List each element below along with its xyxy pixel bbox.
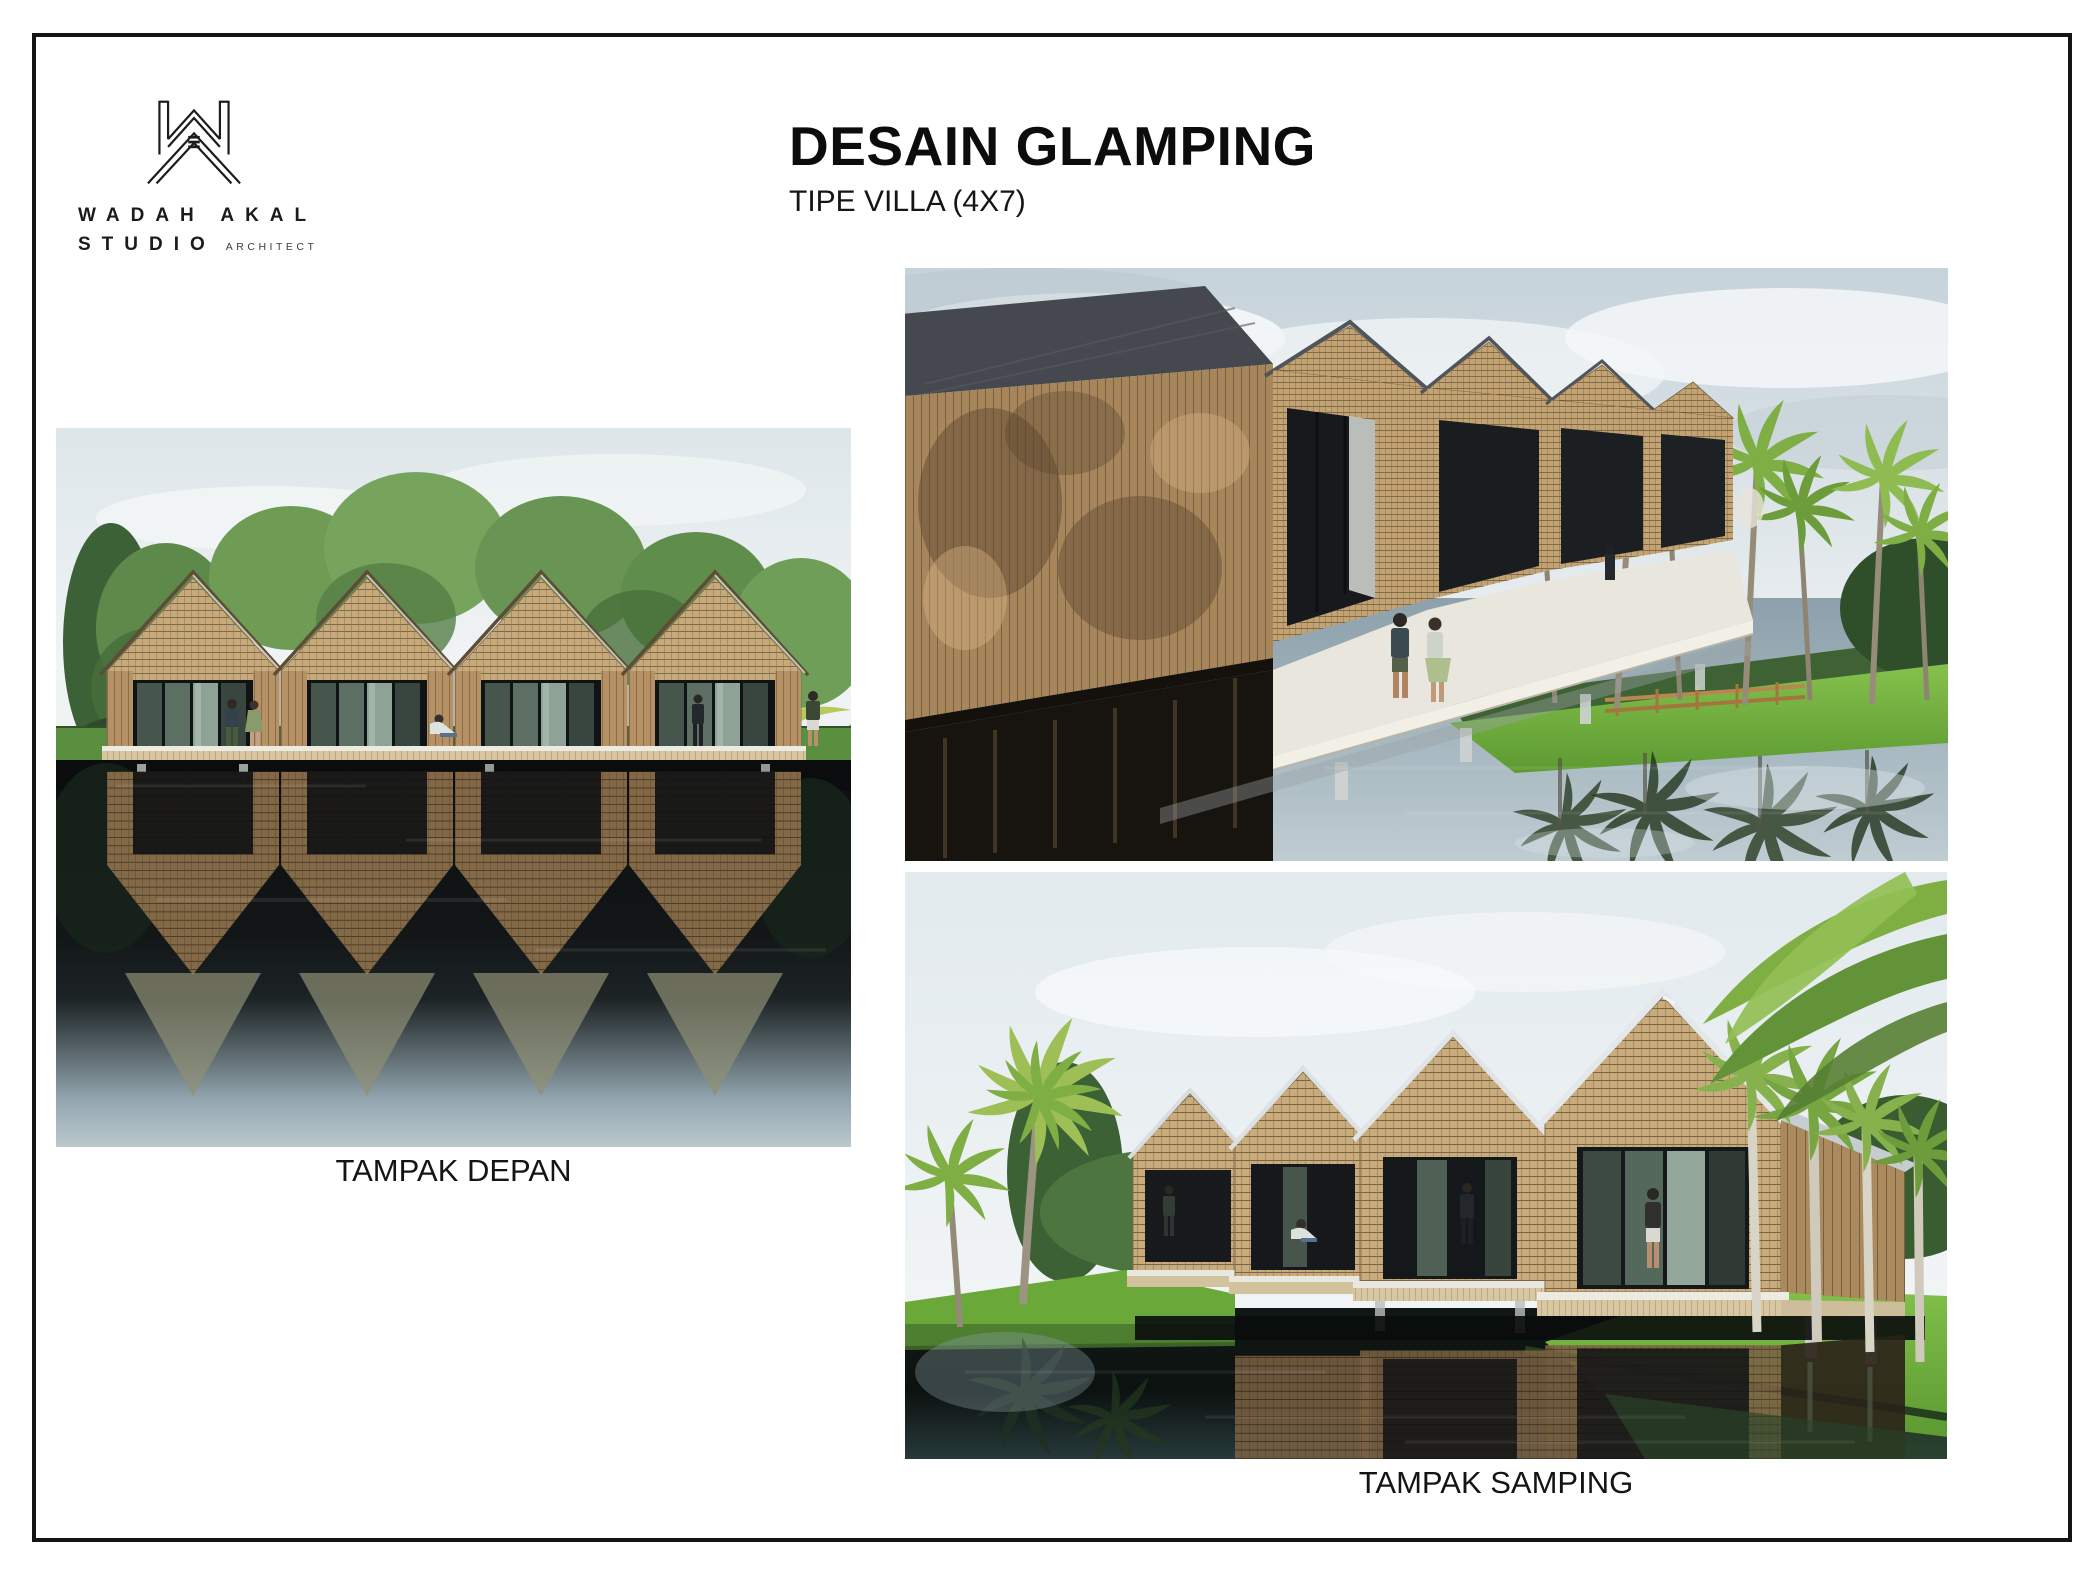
front-water <box>56 760 851 1147</box>
presentation-slide: WADAH AKAL STUDIOARCHITECT DESAIN GLAMPI… <box>0 0 2100 1575</box>
brand-architect: ARCHITECT <box>226 241 318 253</box>
render-side-view: TAMPAK SAMPING <box>905 872 1947 1459</box>
studio-brand: WADAH AKAL STUDIOARCHITECT <box>78 205 328 256</box>
render-front-view: TAMPAK DEPAN <box>56 428 851 1147</box>
brand-name: WADAH AKAL <box>78 205 328 227</box>
render-perspective-view <box>905 268 1948 861</box>
brand-sub: STUDIOARCHITECT <box>78 234 328 256</box>
caption-side-view: TAMPAK SAMPING <box>905 1465 1947 1501</box>
caption-front-view: TAMPAK DEPAN <box>56 1153 851 1189</box>
title-block: DESAIN GLAMPING TIPE VILLA (4X7) <box>789 118 1316 219</box>
perspective-illustration <box>905 268 1948 861</box>
side-view-illustration <box>905 872 1947 1459</box>
wadah-akal-logo-icon <box>146 96 242 190</box>
front-view-illustration <box>56 428 851 1147</box>
brand-studio: STUDIO <box>78 234 216 255</box>
page-subtitle: TIPE VILLA (4X7) <box>789 185 1316 219</box>
page-title: DESAIN GLAMPING <box>789 118 1316 176</box>
